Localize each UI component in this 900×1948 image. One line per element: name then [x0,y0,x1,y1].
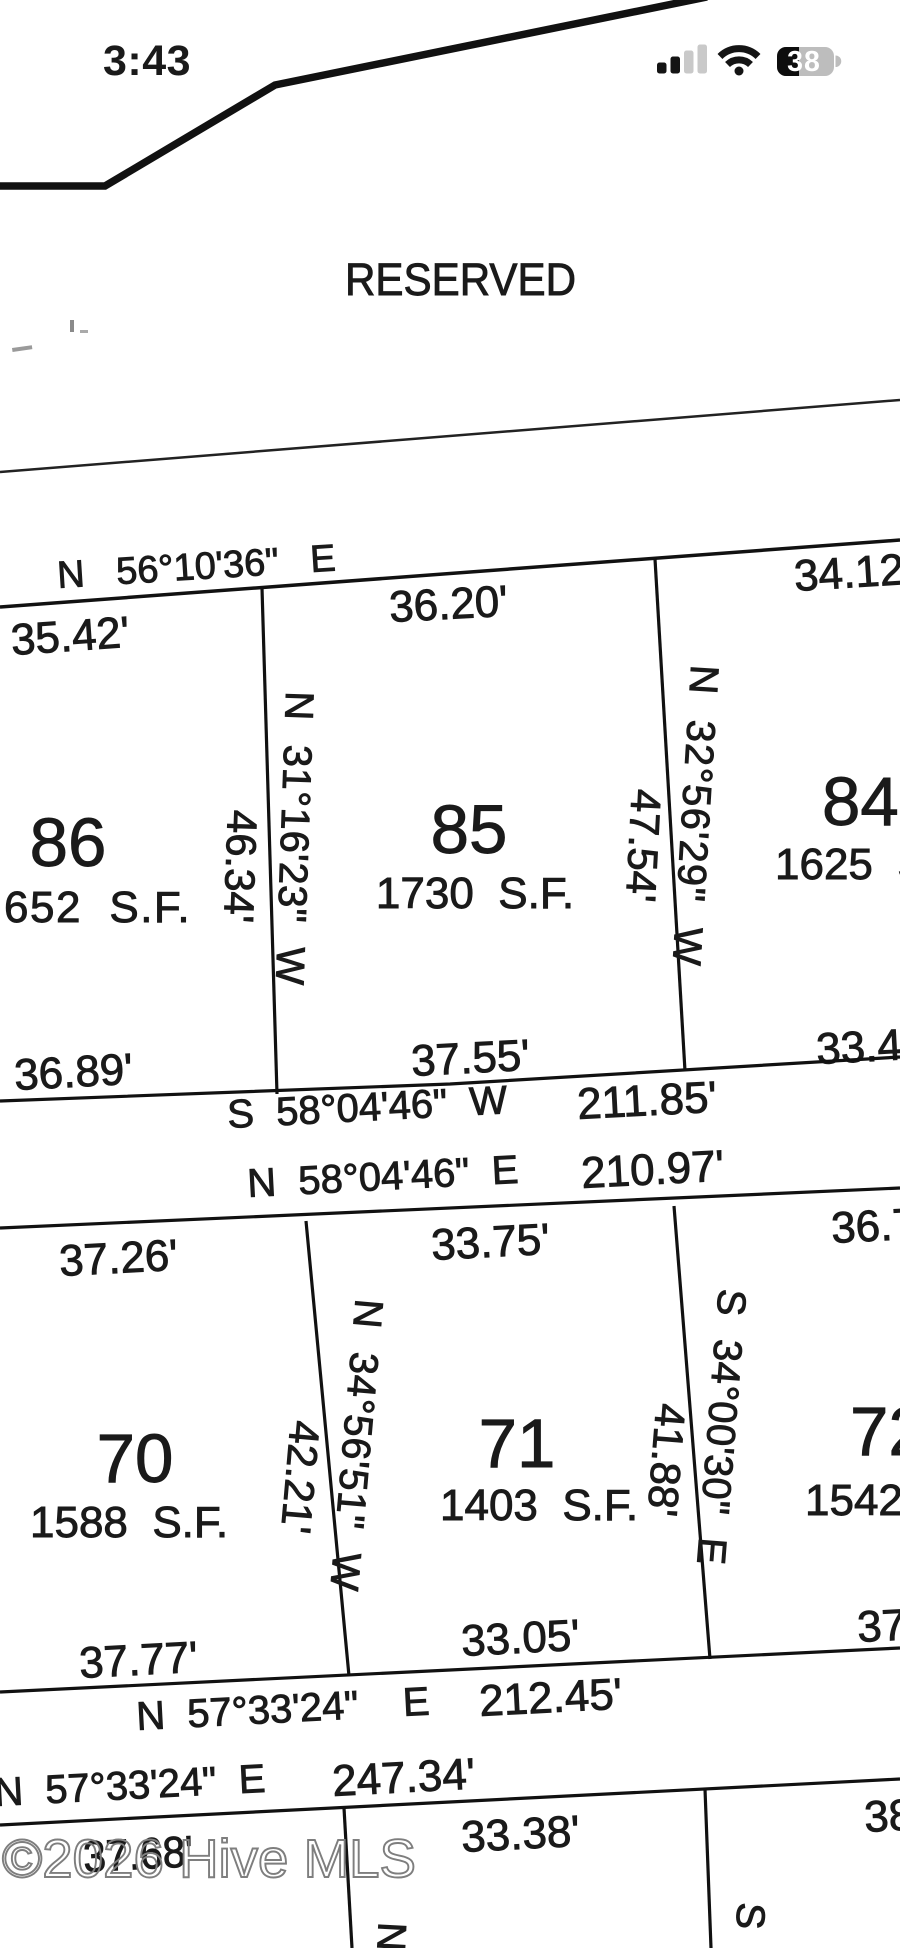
svg-text:38.45': 38.45' [863,1787,900,1842]
svg-text:33.05': 33.05' [460,1611,581,1666]
svg-text:86: 86 [30,804,107,881]
svg-text:33.75': 33.75' [430,1215,551,1270]
svg-text:46.34': 46.34' [215,809,266,924]
svg-text:38: 38 [787,46,821,78]
svg-text:652 S.F.: 652 S.F. [4,883,191,932]
svg-text:S: S [727,1901,773,1931]
svg-text:33.45': 33.45' [815,1019,900,1074]
svg-text:37.26': 37.26' [58,1231,179,1286]
svg-text:1588 S.F.: 1588 S.F. [30,1498,228,1547]
svg-text:RESERVED: RESERVED [345,254,576,305]
svg-text:37.55': 37.55' [410,1031,531,1086]
svg-text:1625 S.F.: 1625 S.F. [775,840,900,889]
svg-text:85: 85 [431,791,508,868]
svg-text:1730 S.F.: 1730 S.F. [376,869,574,918]
svg-text:71: 71 [479,1405,556,1482]
svg-text:36.75': 36.75' [830,1198,900,1253]
svg-text:1542 S.F.: 1542 S.F. [805,1476,900,1525]
svg-text:70: 70 [97,1420,174,1497]
svg-text:247.34': 247.34' [331,1750,476,1806]
svg-text:72: 72 [850,1393,900,1470]
svg-text:41.88': 41.88' [639,1402,695,1518]
svg-text:35.42': 35.42' [9,608,131,665]
svg-text:47.54': 47.54' [617,788,670,903]
svg-text:210.97': 210.97' [580,1142,725,1198]
svg-text:N: N [368,1921,413,1948]
svg-text:84: 84 [822,763,899,840]
svg-text:©2026 Hive MLS: ©2026 Hive MLS [2,1829,416,1889]
svg-text:1403 S.F.: 1403 S.F. [440,1481,638,1530]
svg-text:212.45': 212.45' [478,1670,623,1726]
svg-text:42.21': 42.21' [272,1419,329,1536]
svg-text:33.38': 33.38' [460,1807,581,1862]
svg-text:3:43: 3:43 [103,37,191,85]
svg-text:37.12': 37.12' [856,1597,900,1652]
svg-text:211.85': 211.85' [576,1073,718,1129]
svg-text:36.20': 36.20' [388,577,509,632]
svg-text:36.89': 36.89' [13,1045,134,1100]
svg-text:37.77': 37.77' [78,1633,199,1688]
svg-text:34.12': 34.12' [793,545,900,601]
